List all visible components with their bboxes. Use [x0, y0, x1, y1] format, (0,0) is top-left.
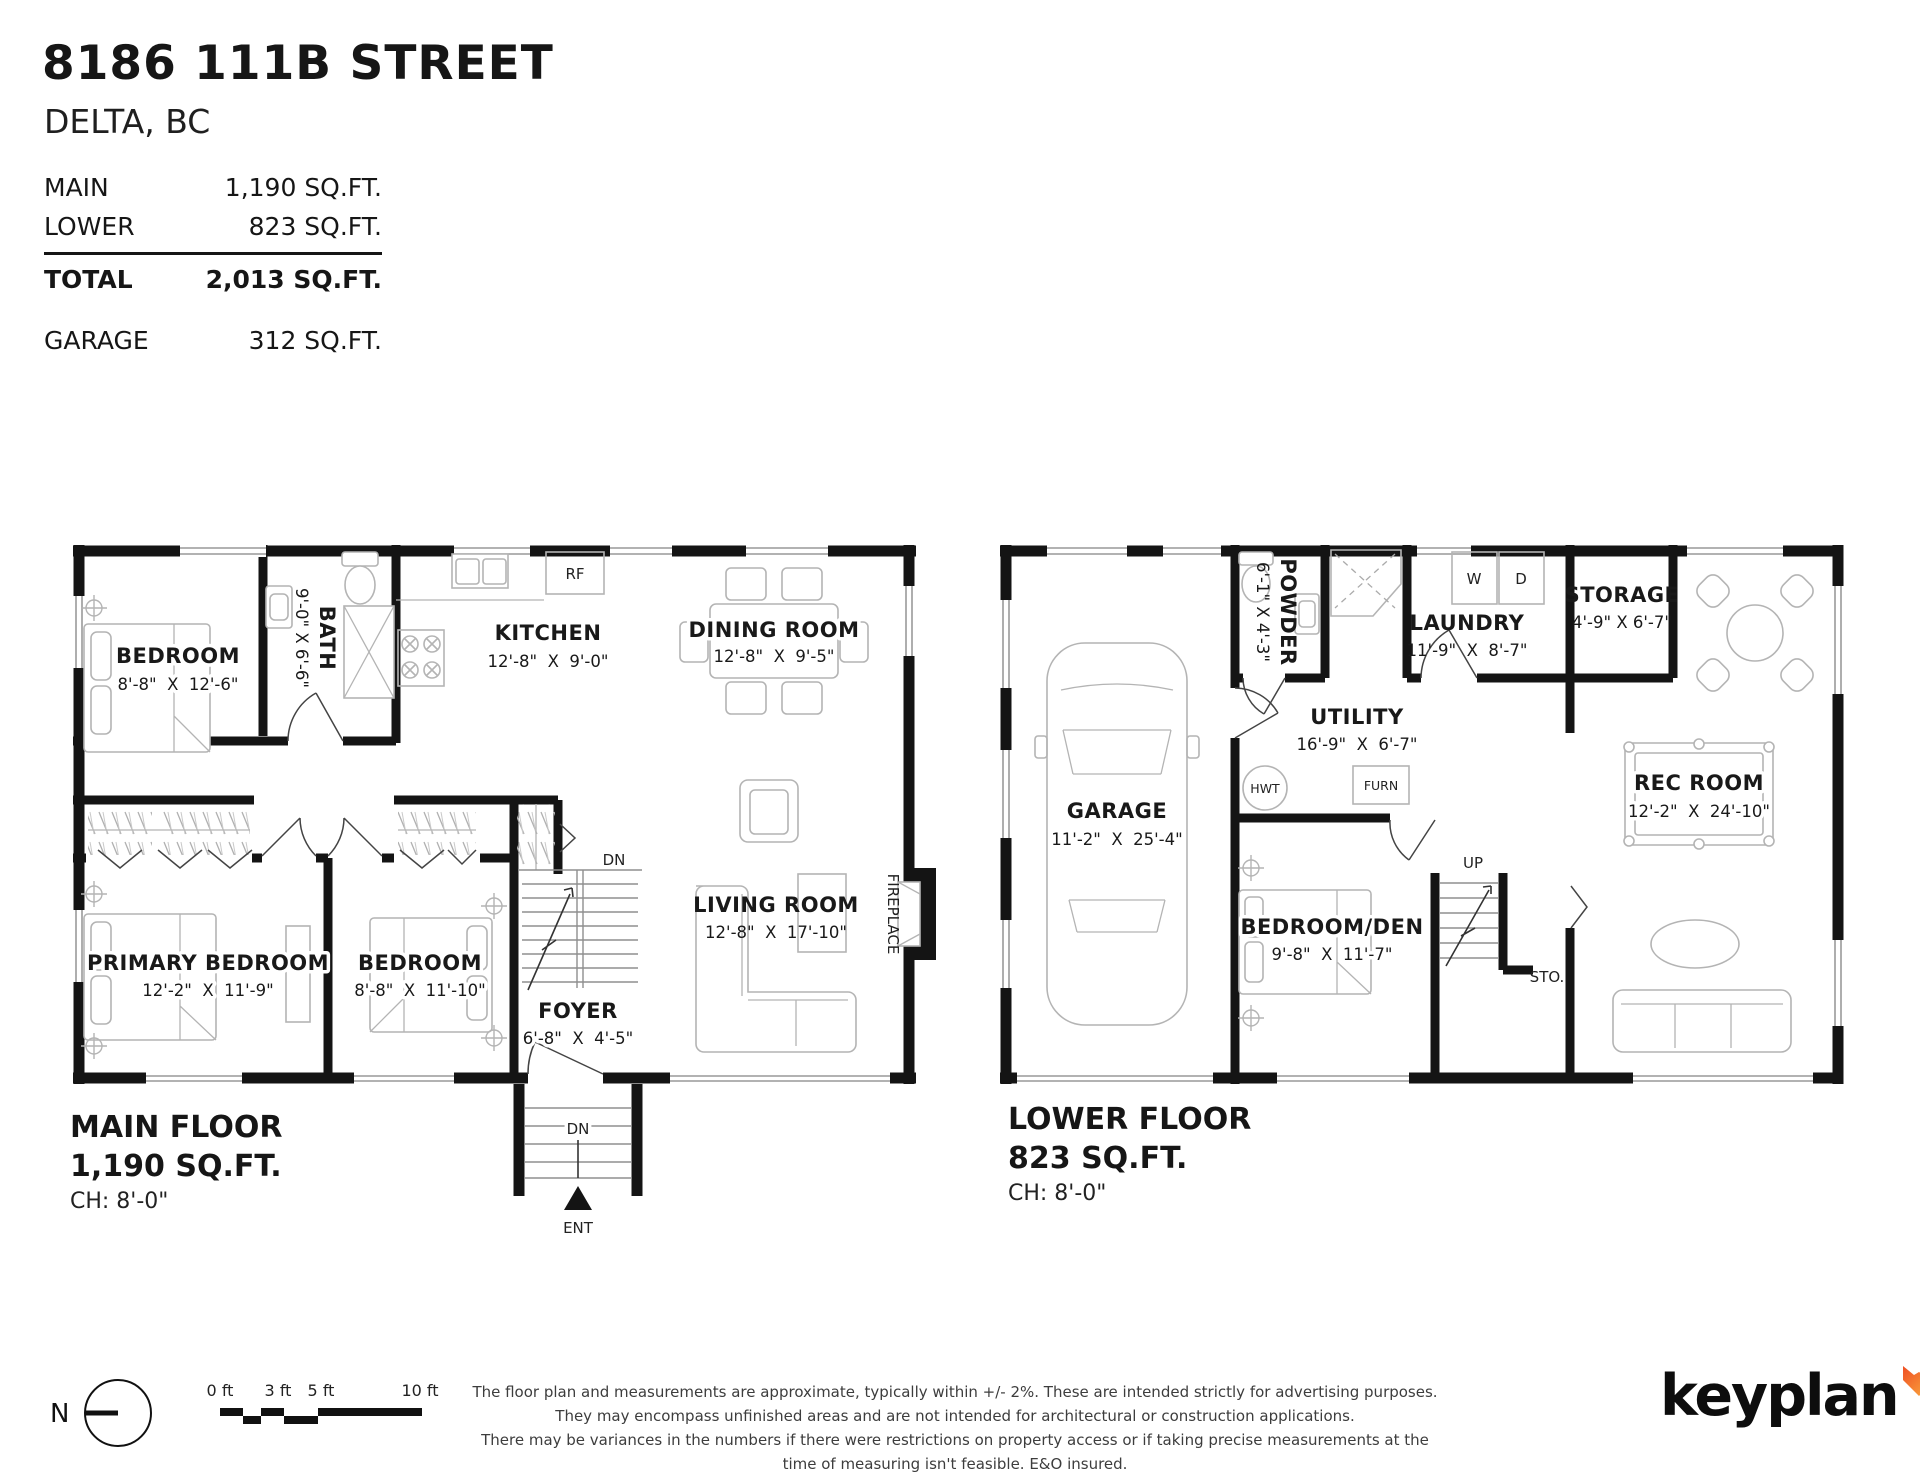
- fridge-icon: RF: [546, 552, 604, 594]
- room-label-bedroom2: BEDROOM: [358, 951, 482, 975]
- room-label-dining: DINING ROOM: [688, 618, 859, 642]
- page-title: 8186 111B STREET: [42, 36, 554, 91]
- summary-row-lower: LOWER 823 SQ.FT.: [44, 207, 382, 246]
- room-label-bath: BATH: [315, 606, 339, 671]
- summary-value: 823 SQ.FT.: [249, 212, 382, 241]
- entry-stairs-icon: [525, 1108, 631, 1178]
- ceiling-light-icon: [1238, 855, 1264, 881]
- room-dims-laundry: 11'-9" X 8'-7": [1407, 641, 1528, 660]
- stairs-down-icon: [518, 870, 642, 990]
- stairs-up-icon: [1440, 883, 1499, 966]
- summary-row-total: TOTAL 2,013 SQ.FT.: [44, 252, 382, 299]
- scale-tick: 0 ft: [207, 1381, 234, 1400]
- bath-sink-icon: [266, 586, 292, 628]
- entry-arrow-icon: [564, 1186, 592, 1210]
- floorplan-page: 8186 111B STREET DELTA, BC MAIN 1,190 SQ…: [0, 0, 1920, 1484]
- room-dims-bedroom2: 8'-8" X 11'-10": [354, 981, 485, 1000]
- summary-value: 2,013 SQ.FT.: [206, 265, 382, 294]
- summary-label: LOWER: [44, 212, 135, 241]
- room-label-kitchen: KITCHEN: [495, 621, 602, 645]
- page-subtitle: DELTA, BC: [44, 102, 210, 141]
- floor-area: 823 SQ.FT.: [1008, 1139, 1251, 1178]
- room-label-laundry: LAUNDRY: [1410, 611, 1525, 635]
- scale-tick: 5 ft: [308, 1381, 335, 1400]
- corner-shower-icon: [1331, 550, 1401, 616]
- summary-label: GARAGE: [44, 326, 149, 355]
- lower-floor-caption: LOWER FLOOR 823 SQ.FT. CH: 8'-0": [1008, 1100, 1251, 1210]
- room-label-powder: POWDER: [1276, 558, 1300, 665]
- summary-value: 312 SQ.FT.: [249, 326, 382, 355]
- summary-label: MAIN: [44, 173, 109, 202]
- north-label: N: [50, 1399, 69, 1429]
- furnace-icon: FURN: [1353, 766, 1409, 804]
- floor-title: LOWER FLOOR: [1008, 1100, 1251, 1139]
- room-dims-living: 12'-8" X 17'-10": [705, 923, 847, 942]
- area-summary-table: MAIN 1,190 SQ.FT. LOWER 823 SQ.FT. TOTAL…: [44, 168, 382, 360]
- hwt-label: HWT: [1250, 781, 1280, 796]
- entry-label: ENT: [563, 1219, 594, 1237]
- fox-icon: [1901, 1366, 1920, 1398]
- washer-icon: W: [1452, 552, 1497, 604]
- stairs-dn-label: DN: [603, 851, 626, 869]
- room-label-storage: STORAGE: [1565, 583, 1680, 607]
- coffee-table-icon: [1651, 920, 1739, 968]
- toilet-icon: [342, 552, 378, 604]
- scale-tick: 10 ft: [401, 1381, 438, 1400]
- dryer-icon: D: [1499, 552, 1544, 604]
- scale-bar: 0 ft 3 ft 5 ft 10 ft: [195, 1378, 455, 1438]
- room-dims-utility: 16'-9" X 6'-7": [1297, 735, 1418, 754]
- floor-ceiling-height: CH: 8'-0": [70, 1186, 282, 1218]
- fireplace-label: FIREPLACE: [884, 874, 902, 955]
- main-floor-caption: MAIN FLOOR 1,190 SQ.FT. CH: 8'-0": [70, 1108, 282, 1218]
- scale-tick: 3 ft: [265, 1381, 292, 1400]
- summary-value: 1,190 SQ.FT.: [225, 173, 382, 202]
- floor-ceiling-height: CH: 8'-0": [1008, 1178, 1251, 1210]
- room-label-living: LIVING ROOM: [693, 893, 859, 917]
- disclaimer-line: There may be variances in the numbers if…: [470, 1428, 1440, 1476]
- dryer-label: D: [1515, 570, 1527, 588]
- room-dims-powder: 6'-1" X 4'-3": [1253, 562, 1272, 662]
- room-dims-bedroom1: 8'-8" X 12'-6": [118, 675, 239, 694]
- armchair-icon: [740, 780, 798, 842]
- summary-row-main: MAIN 1,190 SQ.FT.: [44, 168, 382, 207]
- room-dims-foyer: 6'-8" X 4'-5": [523, 1029, 633, 1048]
- summary-row-garage: GARAGE 312 SQ.FT.: [44, 321, 382, 360]
- entry-dn-label: DN: [567, 1120, 590, 1138]
- room-label-bedroom-den: BEDROOM/DEN: [1240, 915, 1423, 939]
- room-dims-kitchen: 12'-8" X 9'-0": [488, 652, 609, 671]
- stairs-up-label: UP: [1463, 854, 1483, 872]
- fireplace-icon: [898, 868, 936, 960]
- washer-label: W: [1467, 570, 1482, 588]
- room-label-bedroom1: BEDROOM: [116, 644, 240, 668]
- disclaimer-line: They may encompass unfinished areas and …: [470, 1404, 1440, 1428]
- room-label-garage: GARAGE: [1067, 799, 1168, 823]
- bed-icon: [1239, 890, 1371, 994]
- room-dims-storage: 4'-9" X 6'-7": [1572, 613, 1672, 632]
- round-table-icon: [1693, 571, 1817, 695]
- shower-icon: [344, 606, 394, 698]
- floor-area: 1,190 SQ.FT.: [70, 1147, 282, 1186]
- disclaimer-text: The floor plan and measurements are appr…: [470, 1380, 1440, 1476]
- stove-icon: [398, 630, 444, 686]
- room-label-rec: REC ROOM: [1634, 771, 1764, 795]
- room-dims-dining: 12'-8" X 9'-5": [714, 647, 835, 666]
- fridge-label: RF: [565, 565, 584, 583]
- keyplan-logo: keyplan: [1660, 1368, 1920, 1425]
- room-dims-garage: 11'-2" X 25'-4": [1051, 830, 1182, 849]
- brand-name: keyplan: [1660, 1368, 1898, 1425]
- kitchen-counter-icon: [396, 554, 544, 600]
- summary-label: TOTAL: [44, 265, 133, 294]
- garage-door-icon: [1017, 1072, 1213, 1084]
- floor-title: MAIN FLOOR: [70, 1108, 282, 1147]
- bed-icon: [84, 914, 310, 1040]
- sofa-icon: [1613, 990, 1791, 1052]
- storage-nook-label: STO.: [1530, 968, 1565, 986]
- room-dims-bedroom-den: 9'-8" X 11'-7": [1272, 945, 1393, 964]
- room-dims-rec: 12'-2" X 24'-10": [1628, 802, 1770, 821]
- ceiling-light-icon: [81, 881, 107, 907]
- ceiling-light-icon: [1238, 1005, 1264, 1031]
- ceiling-light-icon: [481, 893, 507, 919]
- furnace-label: FURN: [1364, 778, 1398, 793]
- disclaimer-line: The floor plan and measurements are appr…: [470, 1380, 1440, 1404]
- room-dims-primary: 12'-2" X 11'-9": [142, 981, 273, 1000]
- bed-icon: [370, 918, 492, 1032]
- room-label-utility: UTILITY: [1310, 705, 1404, 729]
- room-dims-bath: 9'-0" X 6'-6": [292, 588, 311, 688]
- north-compass-icon: N: [38, 1368, 168, 1458]
- room-label-primary: PRIMARY BEDROOM: [87, 951, 329, 975]
- room-label-foyer: FOYER: [538, 999, 618, 1023]
- hot-water-tank-icon: HWT: [1243, 766, 1287, 810]
